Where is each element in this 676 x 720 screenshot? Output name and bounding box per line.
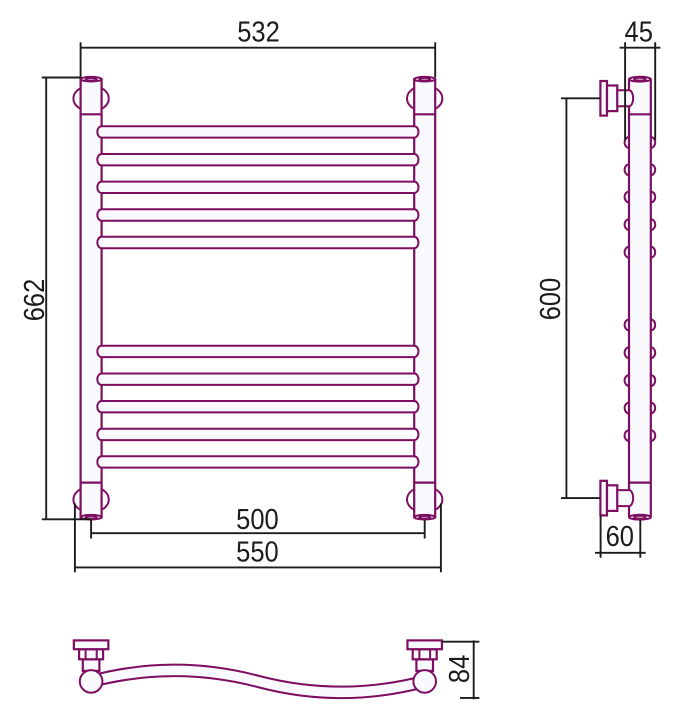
svg-text:84: 84 xyxy=(442,655,475,683)
svg-text:500: 500 xyxy=(236,502,279,535)
svg-text:600: 600 xyxy=(533,278,566,321)
svg-text:662: 662 xyxy=(18,279,51,322)
svg-text:550: 550 xyxy=(236,535,279,568)
svg-text:60: 60 xyxy=(606,519,634,552)
svg-text:532: 532 xyxy=(237,15,280,48)
svg-text:45: 45 xyxy=(625,15,653,48)
